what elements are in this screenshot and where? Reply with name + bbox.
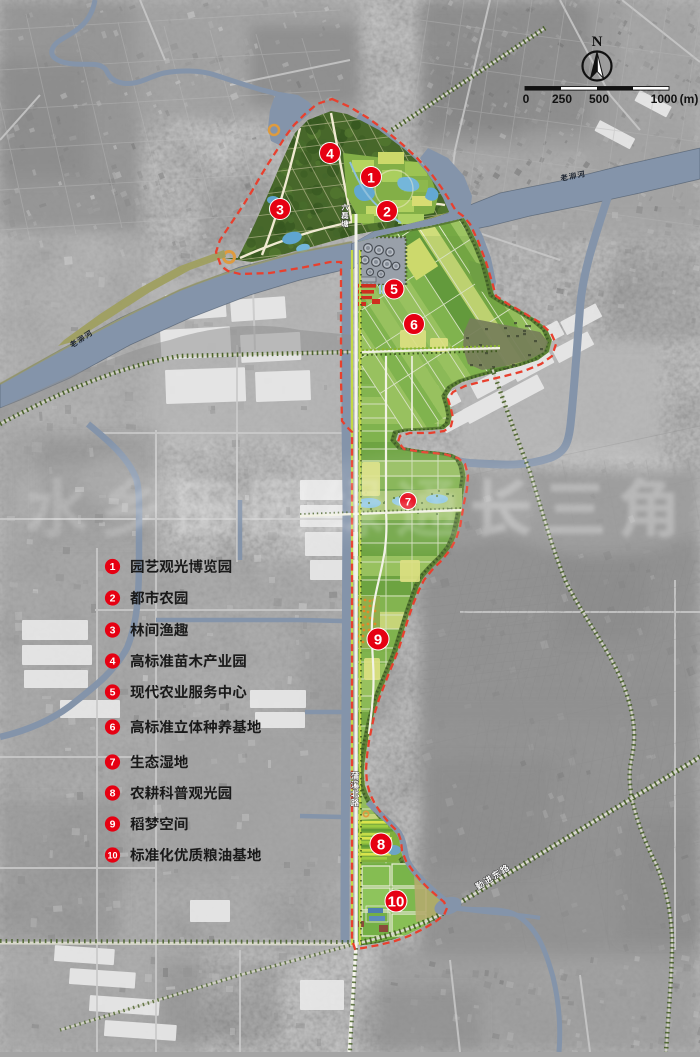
svg-text:3: 3 [276,202,284,218]
svg-text:7: 7 [110,757,116,769]
svg-text:6: 6 [410,317,418,333]
svg-text:0: 0 [523,92,530,106]
svg-text:2: 2 [110,593,116,605]
svg-text:N: N [592,34,603,50]
svg-text:9: 9 [374,632,382,649]
svg-text:5: 5 [110,687,116,699]
svg-text:8: 8 [110,788,116,800]
svg-text:2: 2 [383,204,391,220]
svg-text:1000: 1000 [651,92,678,106]
svg-text:250: 250 [552,92,572,106]
svg-text:10: 10 [388,894,405,911]
svg-text:4: 4 [110,656,116,668]
svg-text:(m): (m) [680,92,699,106]
svg-text:5: 5 [390,281,398,297]
svg-text:1: 1 [110,561,116,573]
svg-text:500: 500 [589,92,609,106]
svg-text:9: 9 [110,819,116,831]
svg-text:4: 4 [326,146,334,162]
svg-text:6: 6 [110,722,116,734]
svg-text:10: 10 [107,851,117,861]
svg-text:8: 8 [377,837,385,854]
svg-text:1: 1 [367,170,375,186]
svg-text:3: 3 [110,625,116,637]
